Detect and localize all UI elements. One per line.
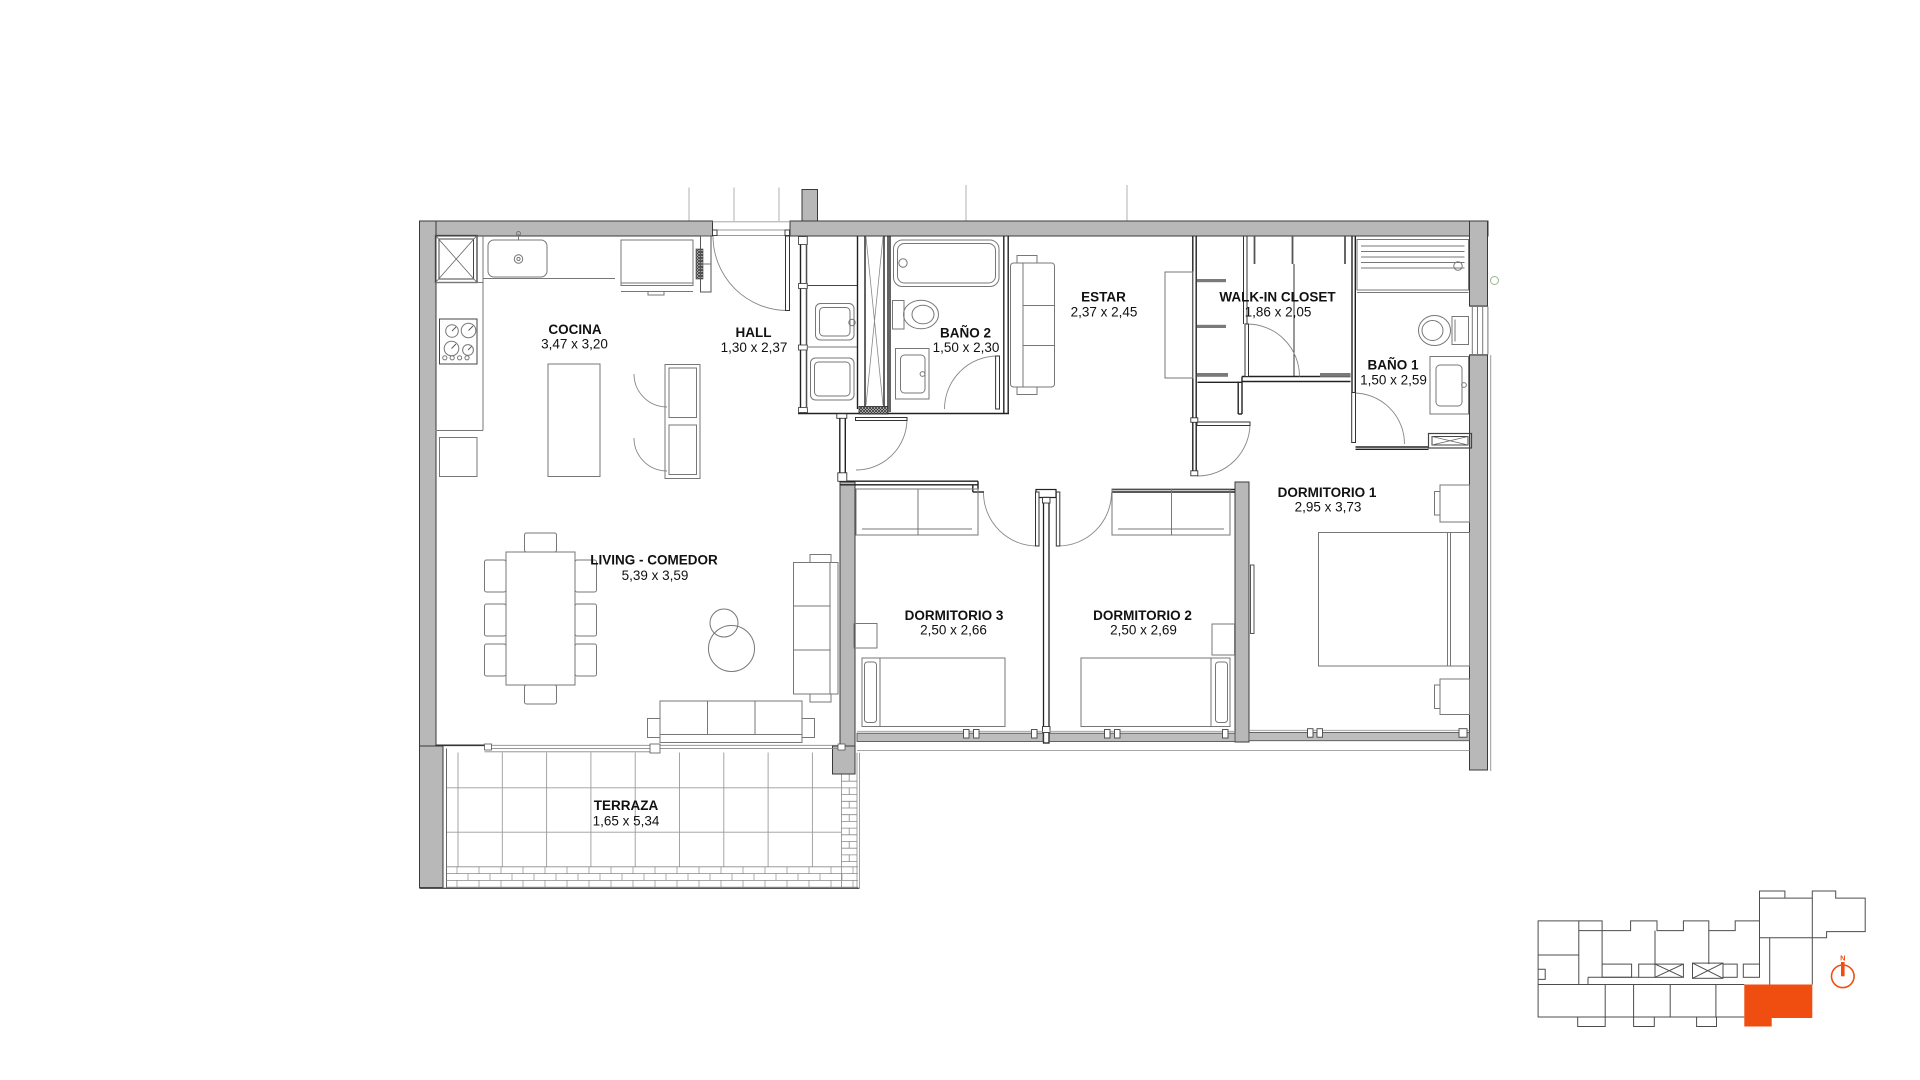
svg-text:2,37 x 2,45: 2,37 x 2,45 bbox=[1071, 305, 1138, 320]
svg-text:WALK-IN CLOSET: WALK-IN CLOSET bbox=[1219, 290, 1336, 305]
svg-text:BAÑO 1: BAÑO 1 bbox=[1367, 358, 1418, 373]
svg-text:1,30 x 2,37: 1,30 x 2,37 bbox=[721, 340, 788, 355]
svg-text:HALL: HALL bbox=[736, 325, 772, 340]
svg-text:5,39 x 3,59: 5,39 x 3,59 bbox=[622, 568, 689, 583]
svg-text:1,50 x 2,59: 1,50 x 2,59 bbox=[1360, 373, 1427, 388]
svg-text:N: N bbox=[1840, 954, 1845, 963]
svg-text:2,50 x 2,66: 2,50 x 2,66 bbox=[920, 623, 987, 638]
svg-text:DORMITORIO 1: DORMITORIO 1 bbox=[1278, 485, 1377, 500]
svg-text:BAÑO 2: BAÑO 2 bbox=[940, 326, 991, 341]
svg-text:1,86 x 2,05: 1,86 x 2,05 bbox=[1245, 305, 1312, 320]
svg-text:COCINA: COCINA bbox=[548, 322, 601, 337]
svg-text:2,50 x 2,69: 2,50 x 2,69 bbox=[1110, 623, 1177, 638]
svg-text:TERRAZA: TERRAZA bbox=[594, 798, 659, 813]
svg-text:3,47 x 3,20: 3,47 x 3,20 bbox=[541, 337, 608, 352]
svg-text:2,95 x 3,73: 2,95 x 3,73 bbox=[1295, 500, 1362, 515]
svg-text:1,50 x 2,30: 1,50 x 2,30 bbox=[933, 340, 1000, 355]
svg-text:LIVING - COMEDOR: LIVING - COMEDOR bbox=[590, 553, 718, 568]
svg-text:DORMITORIO 3: DORMITORIO 3 bbox=[905, 608, 1004, 623]
svg-text:1,65 x 5,34: 1,65 x 5,34 bbox=[593, 814, 660, 829]
svg-text:ESTAR: ESTAR bbox=[1081, 290, 1126, 305]
svg-text:DORMITORIO 2: DORMITORIO 2 bbox=[1093, 608, 1192, 623]
